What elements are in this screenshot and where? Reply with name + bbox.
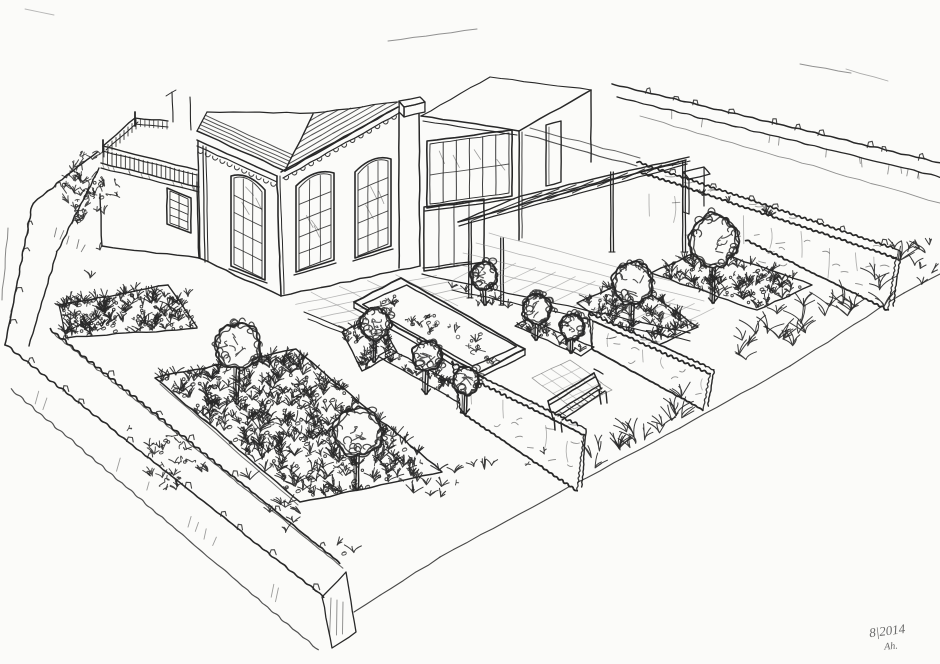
svg-text:Ah.: Ah.	[883, 641, 899, 653]
svg-text:8|2014: 8|2014	[868, 621, 906, 640]
